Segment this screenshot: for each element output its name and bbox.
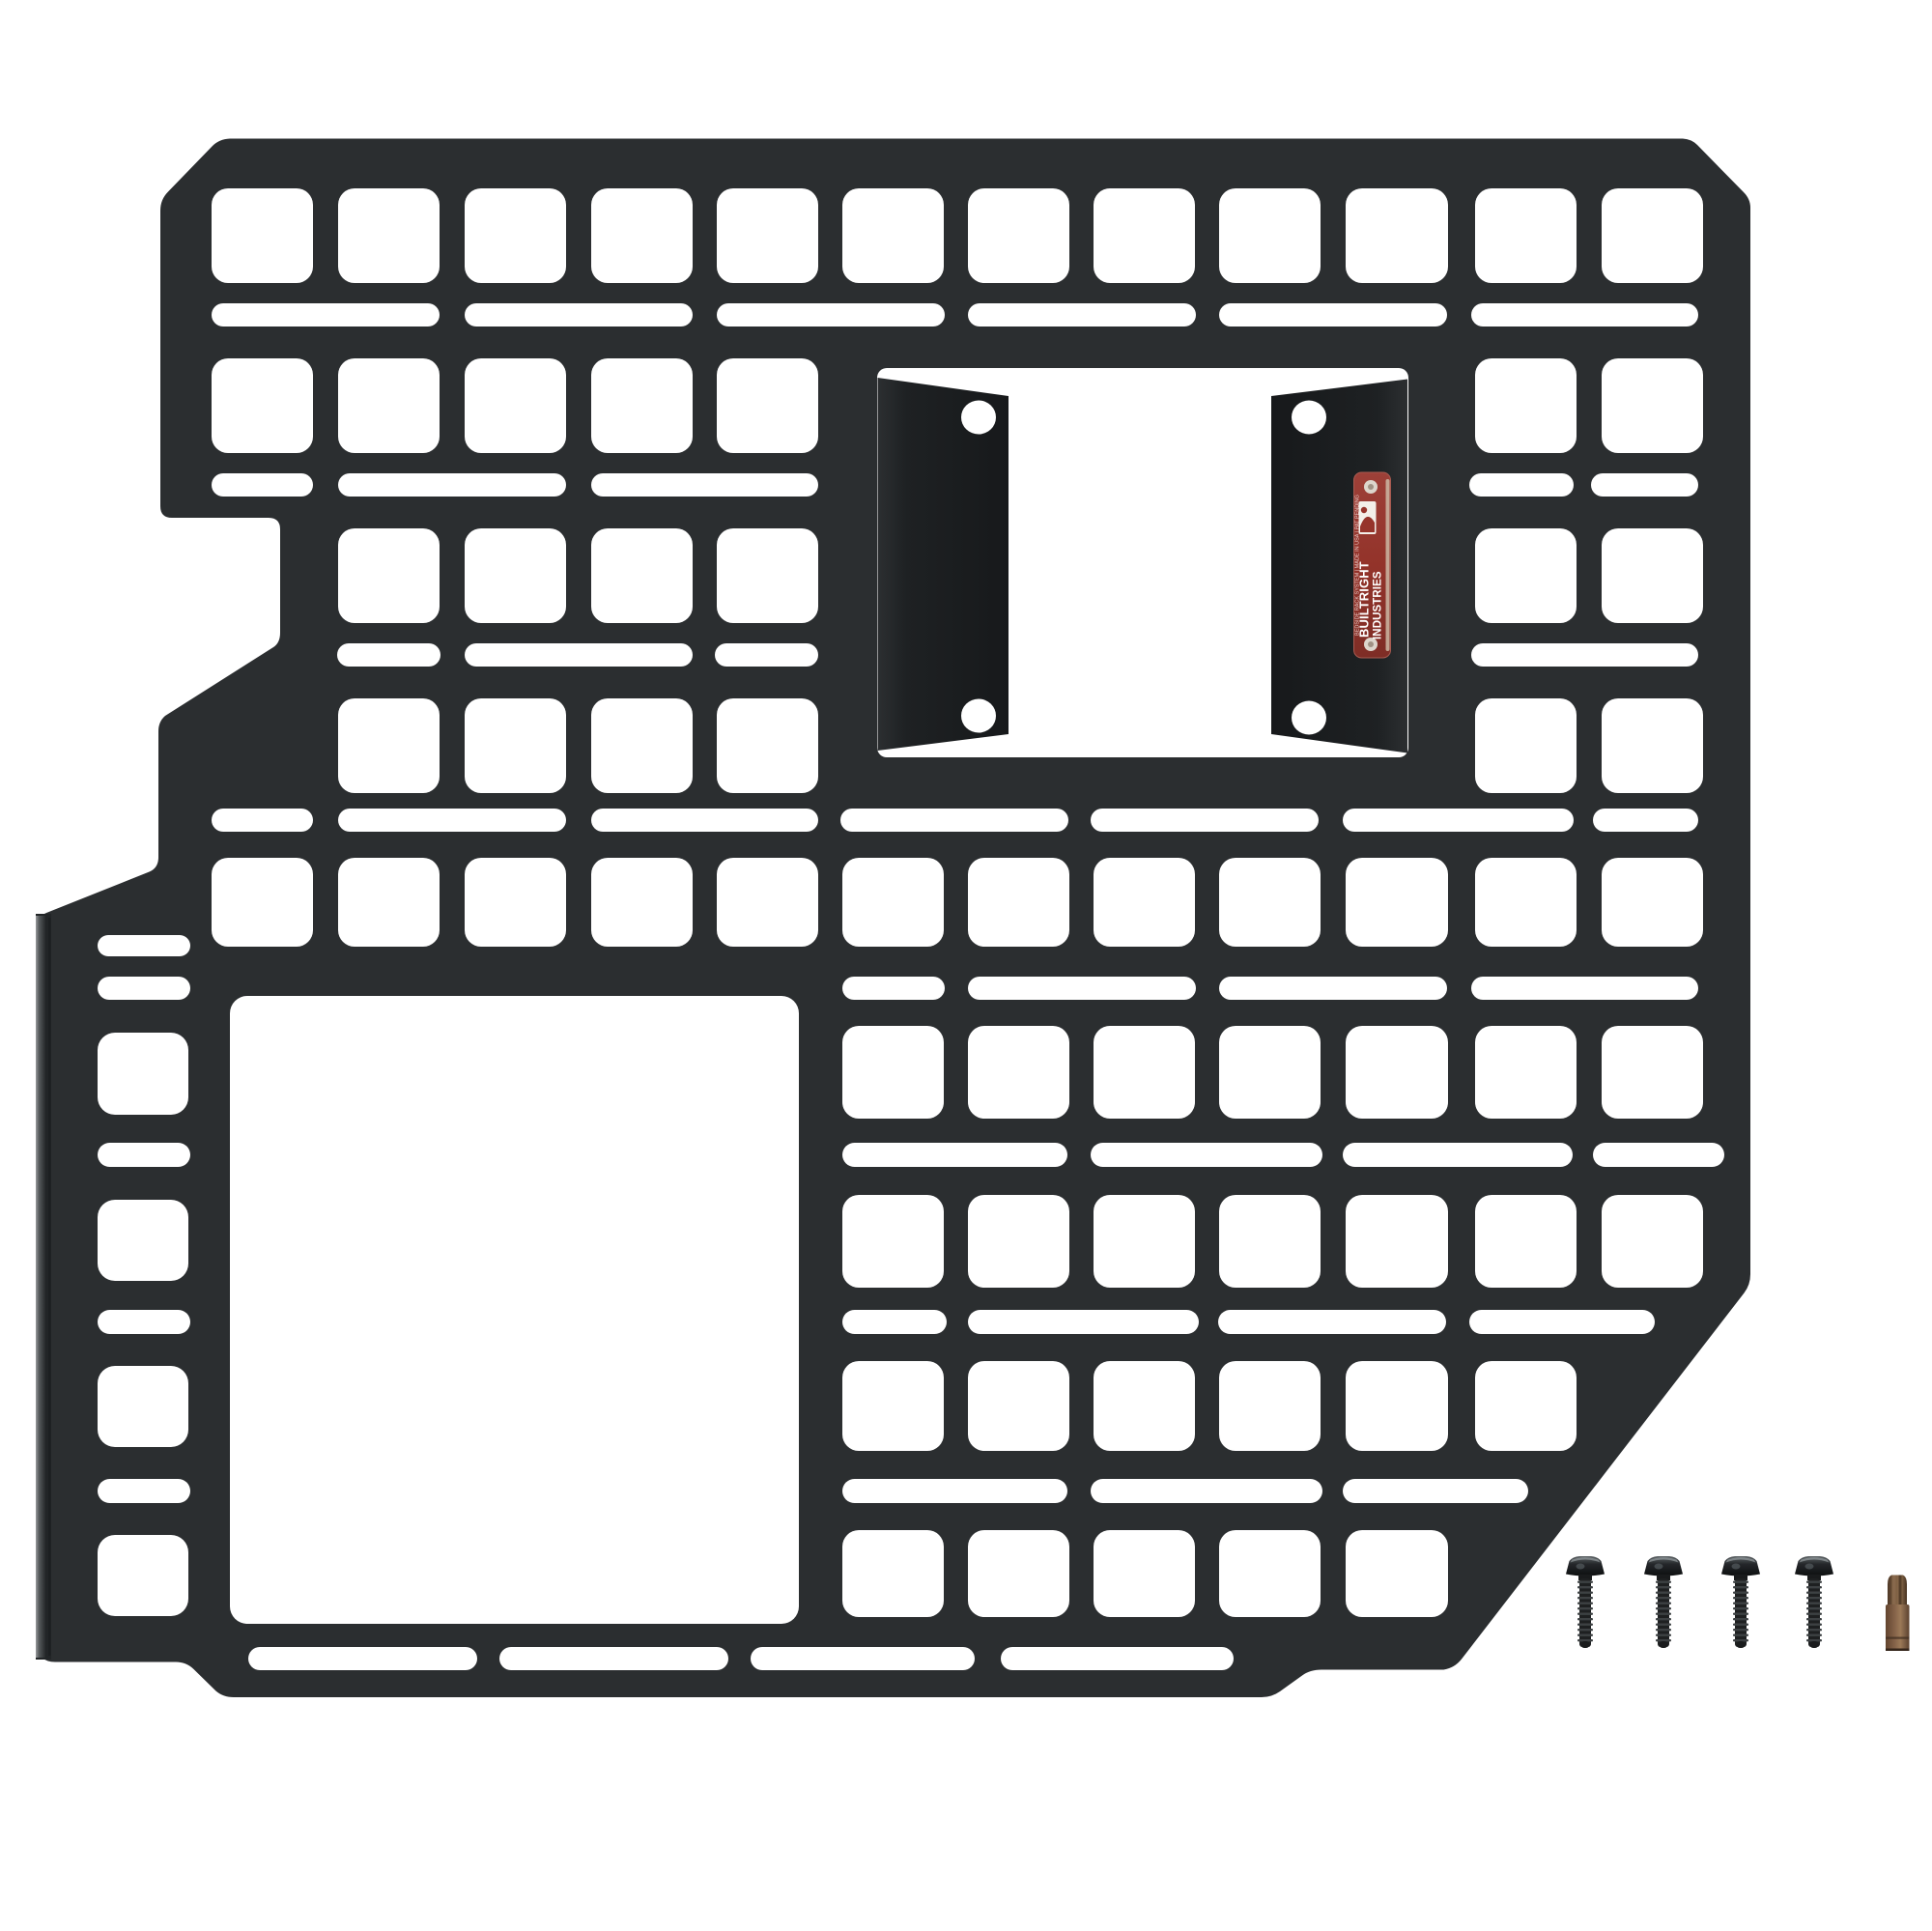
svg-text:BEDSIDE RACK SYSTEM | MADE IN: BEDSIDE RACK SYSTEM | MADE IN USA | PAT … [1355,495,1361,636]
svg-text:INDUSTRIES: INDUSTRIES [1373,571,1384,639]
